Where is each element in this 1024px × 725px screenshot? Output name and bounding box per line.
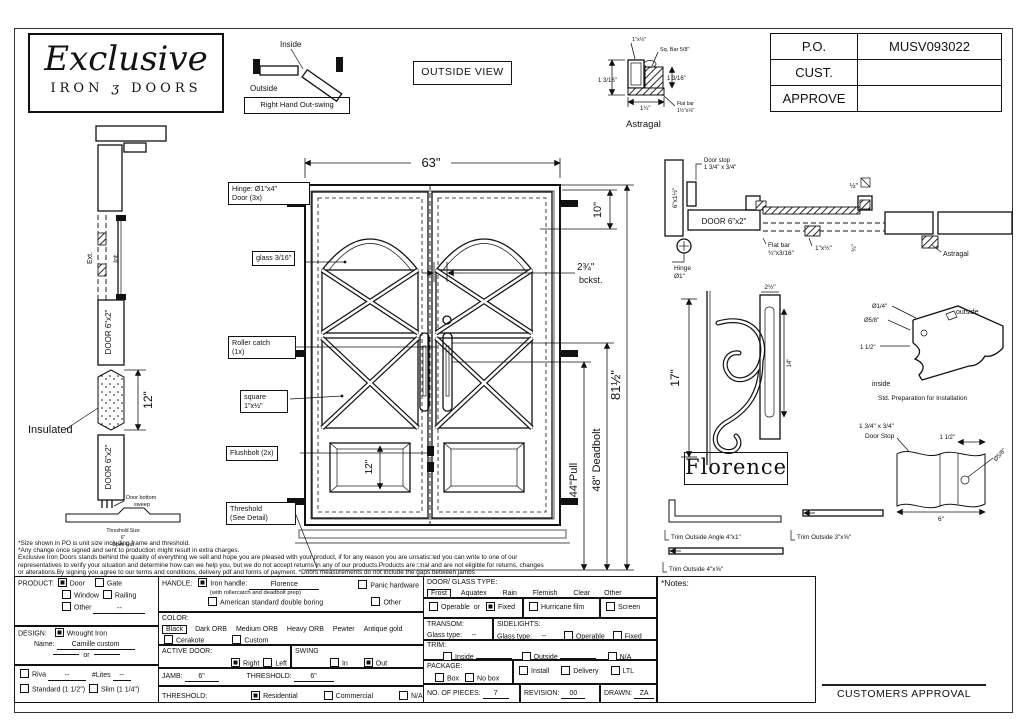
- door-bottom-sweep-label-2: sweep: [134, 502, 150, 508]
- disclaimer-text: *Size shown in PO is unit size including…: [18, 540, 1013, 576]
- dim-pull-height: 44"Pull: [568, 463, 580, 497]
- checkbox-swing-out-filled[interactable]: [364, 658, 373, 667]
- disclaimer-line-4: representatives to verify your situation…: [18, 562, 1013, 569]
- flushbolt-label: Flushbolt (2x): [226, 446, 278, 461]
- transom-glass-value[interactable]: --: [464, 631, 484, 641]
- form-cell-revision: REVISION: 00: [520, 684, 600, 703]
- threshold-label-line2: (See Detail): [230, 514, 292, 523]
- po-value: MUSV093022: [858, 34, 1001, 59]
- form-cell-jamb: JAMB: 6" THRESHOLD: 6": [158, 668, 424, 686]
- dim-backset-label: bckst.: [579, 275, 603, 285]
- color-darkorb-option[interactable]: Dark ORB: [195, 626, 227, 633]
- form-cell-glazing: Operable or Fixed: [423, 598, 523, 618]
- swing-in-label: In: [342, 660, 348, 667]
- product-other-value[interactable]: --: [93, 604, 145, 614]
- left-door-bottom-label: DOOR 6"x2": [104, 444, 113, 489]
- stop-size-label-1: 1 3/4" x 3/4": [859, 423, 895, 430]
- left-jamb-section: Ext. Int. DOOR 6"x2" 12" DOOR 6"x2" Door…: [28, 118, 228, 558]
- checkbox-window[interactable]: [62, 590, 71, 599]
- transom-glass-label: Glass type:: [427, 632, 462, 639]
- door-stop-label-1: Door stop: [704, 158, 731, 164]
- handle-prep-detail: Ø1/4" Ø5/8" 1 1/2" outside inside Std. P…: [858, 288, 1024, 408]
- approve-row: APPROVE: [771, 86, 1001, 111]
- checkbox-gate[interactable]: [95, 578, 104, 587]
- threshold-na-label: N/A: [411, 693, 423, 700]
- checkbox-slim[interactable]: [89, 684, 98, 693]
- sidelight-fixed-label: Fixed: [625, 633, 642, 640]
- form-cell-sidelights: SIDELIGHTS: Glass type: -- Operable Fixe…: [493, 618, 657, 640]
- form-cell-transom: TRANSOM: Glass type: --: [423, 618, 493, 640]
- glass-frost-option[interactable]: Frost: [427, 589, 451, 598]
- door-width-dim: 63": [421, 155, 440, 170]
- po-table: P.O. MUSV093022 CUST. APPROVE: [770, 33, 1002, 112]
- checkbox-riva[interactable]: [20, 669, 29, 678]
- door-leaf-right: [432, 192, 552, 518]
- handle-label: HANDLE:: [162, 581, 192, 588]
- jamb-label: JAMB:: [162, 673, 183, 680]
- astragal-sq-bar-label: Sq. Bar 5/8": [660, 47, 690, 53]
- prep-dim-fiveeighth: Ø5/8": [864, 318, 879, 324]
- product-window-label: Window: [74, 593, 99, 600]
- lites-value[interactable]: --: [113, 671, 131, 681]
- form-cell-trim: TRIM: Inside Outside N/A: [423, 640, 657, 660]
- logo-word-doors: DOORS: [131, 81, 201, 96]
- color-label: COLOR:: [162, 615, 189, 622]
- door-stop-label-2: 1 3/4" x 3/4": [704, 165, 736, 171]
- door-bottom-sweep-label-1: Door bottom: [126, 495, 157, 501]
- design-name-value[interactable]: Camille custom: [57, 640, 135, 650]
- threshold-size-label-1: Threshold Size: [106, 528, 140, 534]
- prep-sketch: [913, 306, 1003, 380]
- swing-label: SWING: [295, 648, 319, 655]
- pieces-value[interactable]: 7: [483, 689, 509, 699]
- color-heavyorb-option[interactable]: Heavy ORB: [287, 626, 324, 633]
- po-row: P.O. MUSV093022: [771, 34, 1001, 60]
- drawn-value[interactable]: ZA: [634, 689, 654, 699]
- customers-approval[interactable]: CUSTOMERS APPROVAL: [822, 684, 986, 700]
- astragal-dim-right: 1 3/16": [667, 76, 686, 82]
- astragal-flatbar-label-1: Flat bar: [677, 101, 694, 107]
- cust-row: CUST.: [771, 60, 1001, 86]
- operable-label: Operable: [441, 604, 470, 611]
- astragal-dim-top: 1"x½": [632, 36, 646, 43]
- checkbox-operable[interactable]: [429, 602, 438, 611]
- handle-width-dim: 2½": [764, 283, 776, 291]
- astragal-caption: Astragal: [626, 119, 661, 130]
- design-wrought-label: Wrought Iron: [67, 631, 107, 638]
- checkbox-door[interactable]: [58, 578, 67, 587]
- commercial-label: Commercial: [336, 693, 373, 700]
- revision-label: REVISION:: [524, 690, 559, 697]
- checkbox-sidelight-operable[interactable]: [564, 631, 573, 640]
- iron-handle-subnote: (with rollercatch and deadbolt prep): [210, 590, 301, 596]
- threshold-type-label: THRESHOLD:: [162, 693, 207, 700]
- logo-script-name: Exclusive: [30, 37, 222, 81]
- package-nobox-label: No box: [477, 675, 499, 682]
- po-label: P.O.: [771, 34, 858, 59]
- glass-clear-option[interactable]: Clear: [573, 590, 590, 597]
- jamb-threshold-label: THRESHOLD:: [247, 673, 292, 680]
- sidelights-glass-label: Glass type:: [497, 633, 532, 640]
- left-section-int-label: Int.: [113, 253, 120, 263]
- swing-inside-label: Inside: [280, 40, 302, 49]
- form-cell-handle: HANDLE: Iron handle: Florence Panic hard…: [158, 576, 424, 612]
- checkbox-standard[interactable]: [20, 684, 29, 693]
- iron-handle-label: Iron handle:: [210, 581, 247, 588]
- approve-label: APPROVE: [771, 86, 858, 111]
- checkbox-american-boring[interactable]: [208, 597, 217, 606]
- prep-dim-quarter: Ø1/4": [872, 304, 887, 310]
- revision-value[interactable]: 00: [561, 689, 585, 699]
- company-logo: Exclusive IRON ʒ DOORS: [28, 33, 224, 113]
- handle-length-dim: 14": [787, 359, 793, 368]
- threshold-label: Threshold (See Detail): [226, 502, 296, 525]
- roller-catch-line2: (1x): [232, 348, 292, 357]
- swing-diagram: Inside Outside: [243, 33, 355, 95]
- form-cell-screen: Screen: [600, 598, 657, 618]
- cust-value[interactable]: [858, 60, 1001, 85]
- prep-dim-oneandhalf: 1 1/2": [860, 345, 875, 351]
- stop-width-dim: 1 1/2": [940, 435, 955, 441]
- standard-label: Standard (1 1/2"): [32, 687, 85, 694]
- stop-hole-dim: Ø5/8": [993, 448, 1008, 463]
- package-label: PACKAGE:: [427, 663, 462, 670]
- logo-scroll-glyph-icon: ʒ: [112, 81, 123, 96]
- design-name-text: Florence: [685, 455, 787, 479]
- iron-handle-value[interactable]: Florence: [249, 580, 319, 590]
- product-gate-label: Gate: [107, 581, 122, 588]
- dim-panel-12in: 12": [364, 459, 375, 474]
- form-cell-color: COLOR: Black Dark ORB Medium ORB Heavy O…: [158, 612, 424, 645]
- prep-inside-label: inside: [872, 381, 890, 388]
- american-boring-label: American standard double boring: [220, 600, 323, 607]
- riva-label: Riva: [32, 672, 46, 679]
- checkbox-ltl[interactable]: [611, 666, 620, 675]
- left-section-ext-label: Ext.: [87, 252, 94, 264]
- drawn-label: DRAWN:: [604, 690, 632, 697]
- scroll-height-dim: 17": [668, 369, 682, 387]
- delivery-label: Delivery: [573, 668, 598, 675]
- astragal-dim-left: 1 3/16": [598, 78, 617, 84]
- active-door-label: ACTIVE DOOR:: [162, 648, 212, 655]
- checkbox-railing[interactable]: [103, 590, 112, 599]
- color-black-option[interactable]: Black: [162, 625, 187, 634]
- form-cell-design: DESIGN: Wrought Iron Name: Camille custo…: [14, 626, 159, 665]
- ltl-label: LTL: [623, 668, 635, 675]
- custom-color-label: Custom: [244, 638, 268, 645]
- form-cell-drawn: DRAWN: ZA: [600, 684, 657, 703]
- dim-backset: 2¾": [577, 262, 595, 273]
- glazing-or-label: or: [474, 604, 480, 611]
- glass-label-text: glass 3/16": [256, 253, 291, 262]
- hinge-detail-label-2: Ø1": [674, 273, 686, 280]
- form-cell-product: PRODUCT: Door Gate Window Railing Other …: [14, 576, 159, 626]
- checkbox-product-other[interactable]: [62, 602, 71, 611]
- jamb-size-label: 6"x1½": [671, 187, 679, 208]
- checkbox-swing-in[interactable]: [330, 658, 339, 667]
- disclaimer-line-2: *Any change once signed and sent to prod…: [18, 547, 1013, 554]
- disclaimer-line-5: or alterations.By signing you agree to o…: [18, 569, 1013, 576]
- color-pewter-option[interactable]: Pewter: [333, 626, 355, 633]
- swing-caption: Right Hand Out-swing: [244, 97, 350, 114]
- checkbox-nobox[interactable]: [465, 673, 474, 682]
- color-antiquegold-option[interactable]: Antique gold: [364, 626, 403, 633]
- checkbox-active-left[interactable]: [263, 658, 272, 667]
- fixed-label: Fixed: [498, 604, 515, 611]
- form-cell-active-door: ACTIVE DOOR: Right Left: [158, 645, 291, 668]
- checkbox-box[interactable]: [435, 673, 444, 682]
- form-cell-swing: SWING In Out: [291, 645, 424, 668]
- sidelights-label: SIDELIGHTS:: [497, 621, 541, 628]
- checkbox-commercial[interactable]: [324, 691, 333, 700]
- disclaimer-line-3: Exclusive Iron Doors stands behind the q…: [18, 554, 1013, 561]
- square-bar-label: square 1"x½": [240, 390, 288, 413]
- right-jamb-section: 6"x1½" Door stop 1 3/4" x 3/4" Hinge Ø1"…: [660, 148, 1012, 280]
- checkbox-sidelight-fixed[interactable]: [613, 631, 622, 640]
- swing-caption-text: Right Hand Out-swing: [260, 100, 333, 109]
- active-right-label: Right: [243, 660, 259, 667]
- hinge-detail-label-1: Hinge: [674, 265, 691, 272]
- dim-door-height: 81½": [608, 370, 623, 400]
- panic-hardware-label: Panic hardware: [370, 583, 419, 590]
- jamb-value[interactable]: 6": [185, 672, 219, 682]
- prep-caption: Std. Preparation for Installation: [878, 395, 968, 402]
- roller-catch-label: Roller catch (1x): [228, 336, 296, 359]
- checkbox-iron-handle[interactable]: [198, 578, 207, 587]
- cerakote-label: Cerakote: [176, 638, 204, 645]
- square-bar-size-label: 1"x½": [815, 244, 833, 252]
- astragal-flatbar-label-2: 1½"x⅛": [677, 107, 694, 114]
- handle-other-label: Other: [383, 600, 401, 607]
- left-door-top-label: DOOR 6"x2": [104, 309, 113, 354]
- hinge-label-line2: Door (3x): [232, 194, 306, 203]
- scroll-ornament: [715, 321, 762, 452]
- disclaimer-line-1: *Size shown in PO is unit size including…: [18, 540, 1013, 547]
- checkbox-cerakote[interactable]: [164, 635, 173, 644]
- stop-size-label-2: Door Stop: [865, 433, 895, 440]
- checkbox-fixed[interactable]: [486, 602, 495, 611]
- checkbox-wrought-iron[interactable]: [55, 628, 64, 637]
- notes-label: *Notes:: [661, 578, 689, 588]
- glass-type-label: DOOR/ GLASS TYPE:: [427, 579, 497, 586]
- glass-aquatex-option[interactable]: Aquatex: [461, 590, 487, 597]
- checkbox-active-right[interactable]: [231, 658, 240, 667]
- riva-value[interactable]: --: [48, 671, 86, 681]
- astragal-dim-bottom: 1¼": [640, 106, 650, 112]
- product-label: PRODUCT:: [18, 581, 54, 588]
- active-left-label: Left: [275, 660, 287, 667]
- form-cell-delivery: Install Delivery LTL: [513, 660, 657, 684]
- glass-label: glass 3/16": [252, 251, 295, 266]
- approve-value[interactable]: [858, 86, 1001, 111]
- jamb-threshold-value[interactable]: 6": [294, 672, 334, 682]
- install-label: Install: [531, 668, 549, 675]
- flat-bar-label-2: ¾"x3/16": [768, 250, 795, 257]
- insulated-label: Insulated: [28, 424, 73, 436]
- astragal-callout: Astragal: [943, 251, 969, 258]
- checkbox-threshold-na[interactable]: [399, 691, 408, 700]
- swing-outside-label: Outside: [250, 84, 278, 93]
- form-cell-notes[interactable]: *Notes:: [657, 576, 816, 703]
- customers-approval-label: CUSTOMERS APPROVAL: [837, 688, 971, 700]
- design-name-plate: Florence: [684, 452, 788, 485]
- pieces-label: NO. OF PIECES:: [427, 690, 481, 697]
- astragal-section-detail: 1 3/16" 1 3/16" 1"x½" Sq. Bar 5/8" 1¼" F…: [598, 26, 733, 132]
- package-box-label: Box: [447, 675, 459, 682]
- hinge-label: Hinge: Ø1"x4" Door (3x): [228, 182, 310, 205]
- three-quarter-dim: ¾": [851, 243, 858, 251]
- outside-view-label: OUTSIDE VIEW: [413, 61, 512, 85]
- checkbox-residential[interactable]: [251, 691, 260, 700]
- dim-deadbolt-height: 48" Deadbolt: [591, 428, 603, 491]
- form-cell-pieces: NO. OF PIECES: 7: [423, 684, 520, 703]
- form-cell-glass-type: DOOR/ GLASS TYPE: Frost Aquatex Rain Fle…: [423, 576, 657, 598]
- right-door-size-label: DOOR 6"x2": [702, 217, 747, 226]
- flushbolt-label-text: Flushbolt (2x): [230, 448, 274, 457]
- residential-label: Residential: [263, 693, 298, 700]
- glass-other-option[interactable]: Other: [604, 590, 622, 597]
- lites-label: #Lites: [92, 672, 111, 679]
- checkbox-panic-hardware[interactable]: [358, 580, 367, 589]
- checkbox-handle-other[interactable]: [371, 597, 380, 606]
- form-cell-riva: Riva -- #Lites -- Standard (1 1/2") Slim…: [14, 665, 159, 703]
- glass-rain-option[interactable]: Rain: [503, 590, 517, 597]
- checkbox-screen[interactable]: [606, 602, 615, 611]
- left-section-12in-dim: 12": [141, 391, 155, 409]
- product-other-label: Other: [74, 605, 92, 612]
- product-door-label: Door: [70, 581, 85, 588]
- hurricane-film-label: Hurricane film: [541, 604, 584, 611]
- checkbox-delivery[interactable]: [561, 666, 570, 675]
- trim-label: TRIM:: [427, 642, 446, 649]
- product-railing-label: Railing: [115, 593, 136, 600]
- design-or-label: or: [83, 652, 89, 659]
- logo-word-iron: IRON: [50, 81, 103, 96]
- checkbox-install[interactable]: [519, 666, 528, 675]
- form-cell-hurricane: Hurricane film: [523, 598, 600, 618]
- glass-flemish-option[interactable]: Flemish: [533, 590, 558, 597]
- slim-label: Slim (1 1/4"): [101, 687, 139, 694]
- sidelight-operable-label: Operable: [576, 633, 605, 640]
- cust-label: CUST.: [771, 60, 858, 85]
- checkbox-hurricane-film[interactable]: [529, 602, 538, 611]
- checkbox-custom-color[interactable]: [232, 635, 241, 644]
- form-cell-threshold: THRESHOLD: Residential Commercial N/A: [158, 686, 424, 703]
- design-label: DESIGN:: [18, 631, 47, 638]
- form-cell-package: PACKAGE: Box No box: [423, 660, 513, 684]
- outside-view-text: OUTSIDE VIEW: [421, 66, 503, 78]
- transom-label: TRANSOM:: [427, 621, 464, 628]
- square-bar-line2: 1"x½": [244, 402, 284, 411]
- color-mediumorb-option[interactable]: Medium ORB: [236, 626, 278, 633]
- design-name-label: Name:: [34, 641, 55, 648]
- swing-out-label: Out: [376, 660, 387, 667]
- flat-bar-label-1: Flat bar: [768, 242, 791, 249]
- half-inch-dim: ½": [850, 182, 859, 190]
- dim-10in: 10": [592, 202, 604, 218]
- spec-sheet: Exclusive IRON ʒ DOORS Inside Outside Ri…: [0, 0, 1024, 725]
- screen-label: Screen: [618, 604, 640, 611]
- stop-length-dim: 6": [938, 516, 945, 523]
